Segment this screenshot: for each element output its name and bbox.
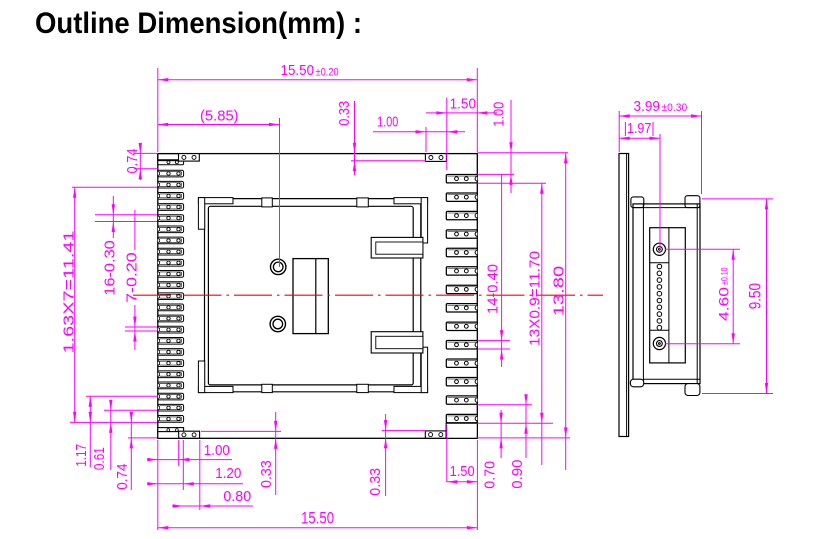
svg-text:1.63X7=11.41: 1.63X7=11.41 — [61, 230, 78, 353]
svg-text:0.33: 0.33 — [367, 468, 384, 496]
svg-text:1.50: 1.50 — [450, 463, 475, 480]
svg-text:16-0.30: 16-0.30 — [102, 240, 119, 296]
svg-text:(5.85): (5.85) — [200, 108, 239, 125]
svg-text:±0.10: ±0.10 — [719, 267, 730, 285]
svg-text:1.00: 1.00 — [377, 114, 398, 131]
svg-text:0.74: 0.74 — [124, 148, 141, 173]
svg-text:1.50: 1.50 — [450, 95, 476, 112]
svg-text:1.17: 1.17 — [73, 444, 90, 467]
svg-text:0.33: 0.33 — [258, 460, 275, 488]
svg-text:±0.20: ±0.20 — [316, 67, 339, 79]
svg-text:15.50: 15.50 — [301, 509, 334, 528]
svg-text:4.60: 4.60 — [716, 287, 731, 321]
svg-text:15.50: 15.50 — [281, 62, 314, 79]
svg-text:9.50: 9.50 — [746, 283, 765, 309]
svg-text:14-0.40: 14-0.40 — [485, 264, 502, 314]
svg-text:7-0.20: 7-0.20 — [123, 252, 140, 303]
svg-text:±0.30: ±0.30 — [662, 102, 688, 114]
svg-text:0.61: 0.61 — [91, 447, 108, 470]
svg-text:3.99: 3.99 — [634, 98, 661, 115]
svg-text:Outline Dimension(mm) :: Outline Dimension(mm) : — [35, 7, 362, 40]
svg-text:1.20: 1.20 — [215, 465, 241, 482]
svg-text:0.90: 0.90 — [509, 460, 526, 489]
svg-text:|1.97|: |1.97| — [624, 120, 655, 137]
svg-text:13X0.9=11.70: 13X0.9=11.70 — [527, 251, 544, 346]
svg-text:1.00: 1.00 — [491, 102, 508, 127]
svg-text:1.00: 1.00 — [204, 442, 230, 459]
svg-text:0.80: 0.80 — [223, 488, 251, 505]
svg-text:13.80: 13.80 — [551, 266, 568, 317]
svg-text:0.70: 0.70 — [482, 461, 499, 489]
svg-text:0.33: 0.33 — [336, 101, 353, 126]
svg-text:0.74: 0.74 — [114, 464, 131, 490]
